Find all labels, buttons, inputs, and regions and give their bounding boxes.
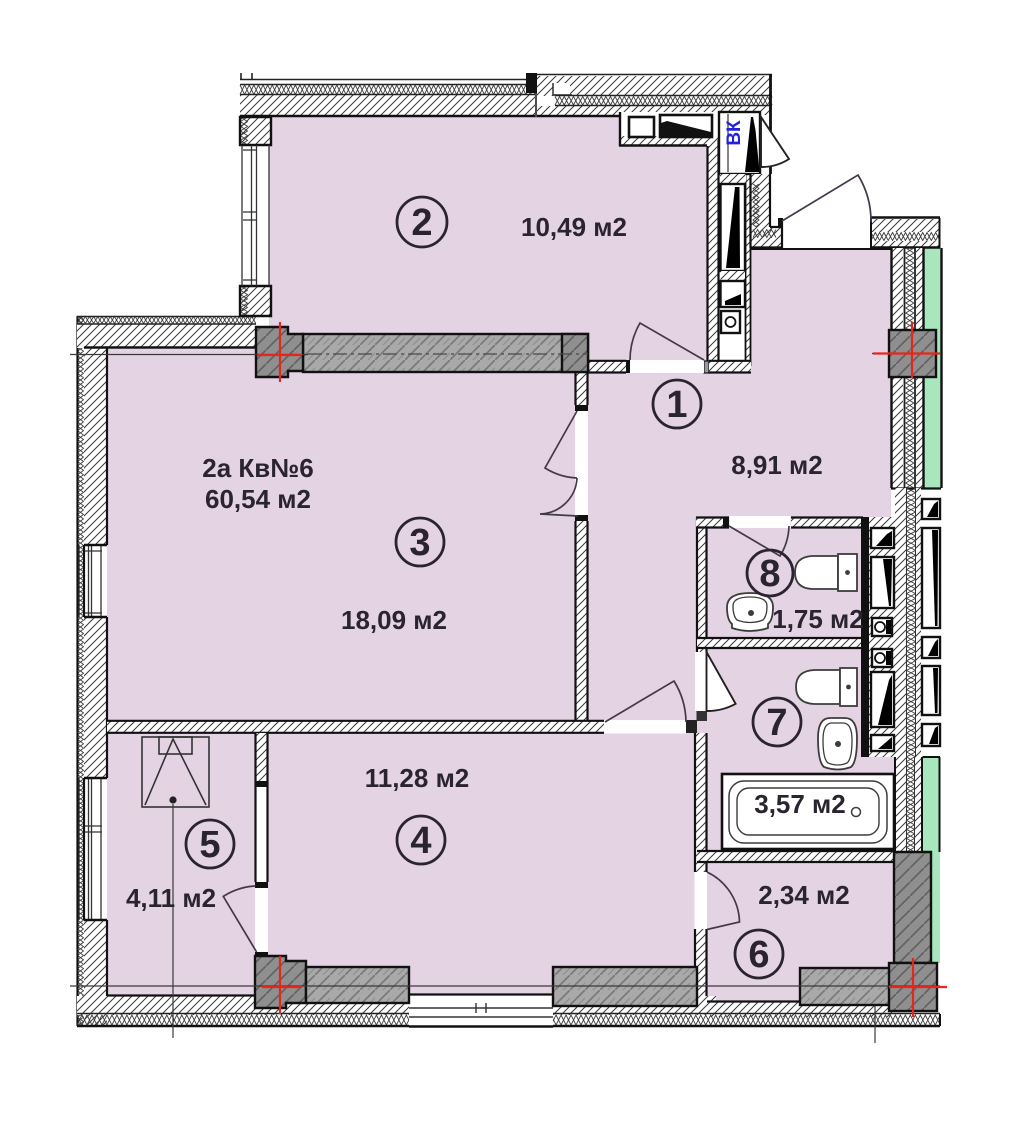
svg-text:60,54 м2: 60,54 м2 <box>205 484 311 514</box>
svg-text:10,49 м2: 10,49 м2 <box>521 212 627 242</box>
svg-text:5: 5 <box>199 824 220 866</box>
svg-text:7: 7 <box>766 702 787 744</box>
svg-text:11,28 м2: 11,28 м2 <box>365 763 470 793</box>
svg-text:4,11 м2: 4,11 м2 <box>126 883 216 913</box>
svg-text:2,34 м2: 2,34 м2 <box>758 880 850 910</box>
svg-text:ВК: ВК <box>724 120 745 146</box>
svg-text:1,75 м2: 1,75 м2 <box>772 604 864 634</box>
svg-text:1: 1 <box>666 384 687 426</box>
svg-text:2а Кв№6: 2а Кв№6 <box>202 453 313 483</box>
svg-text:6: 6 <box>748 934 769 976</box>
svg-text:2: 2 <box>411 202 432 244</box>
svg-text:8: 8 <box>759 553 780 595</box>
svg-text:8,91 м2: 8,91 м2 <box>731 450 823 480</box>
svg-text:3: 3 <box>409 522 430 564</box>
svg-text:4: 4 <box>410 820 431 862</box>
svg-text:3,57 м2: 3,57 м2 <box>754 789 846 819</box>
svg-text:18,09 м2: 18,09 м2 <box>341 605 447 635</box>
